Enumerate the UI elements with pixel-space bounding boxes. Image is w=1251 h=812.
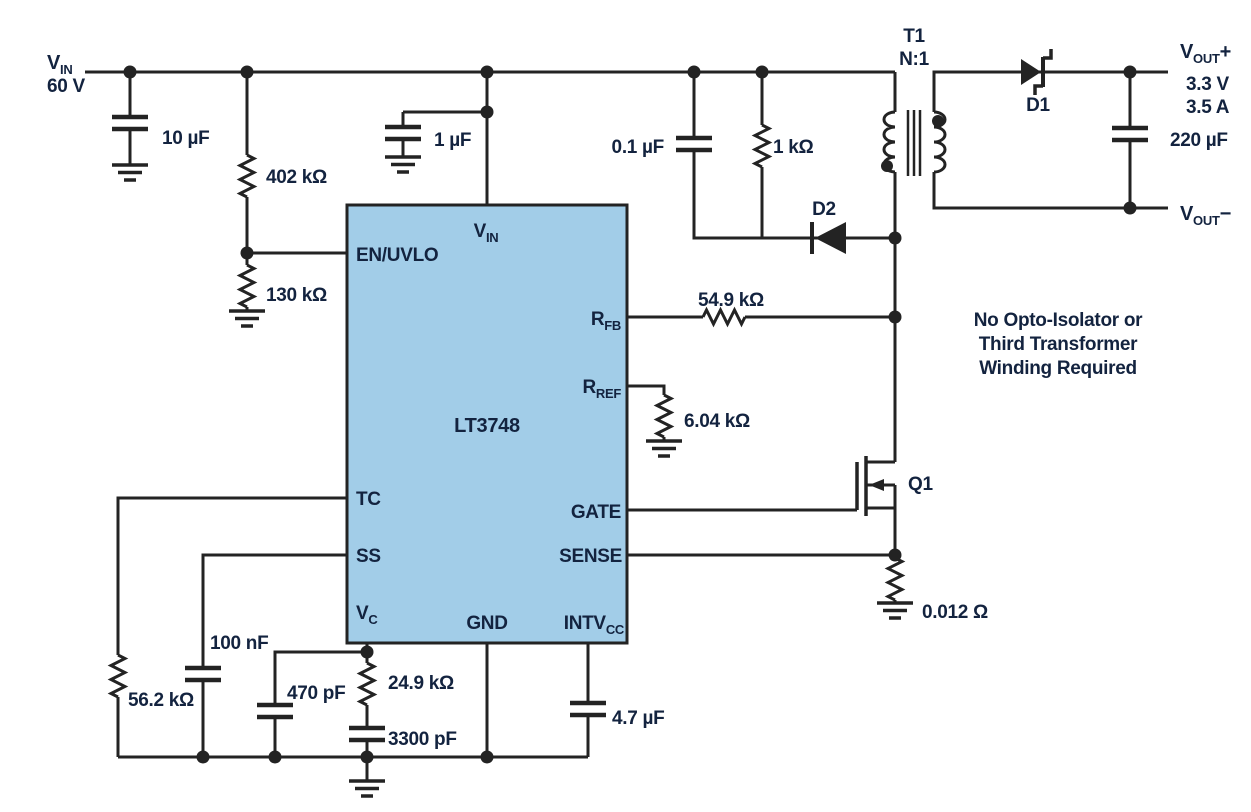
- label-resistor-0p012: 0.012 Ω: [922, 602, 988, 623]
- label-cap-4p7uf: 4.7 µF: [612, 708, 664, 729]
- cap-10uf-symbol: [112, 117, 148, 129]
- wire-vc-net: [275, 643, 367, 781]
- ground-uvlo: [229, 311, 265, 326]
- schematic-page: LT3748 EN/UVLO VIN RFB RREF TC SS VC GAT…: [0, 0, 1251, 812]
- junction-dot: [889, 549, 902, 562]
- resistor-1k-symbol: [755, 125, 769, 167]
- label-cap-470pf: 470 pF: [287, 683, 345, 704]
- label-vout-voltage: 3.3 V: [1186, 74, 1229, 95]
- cap-470pf-symbol: [257, 705, 293, 717]
- ground-rref: [646, 441, 682, 456]
- resistor-6p04k-symbol: [657, 395, 671, 437]
- junction-dot: [688, 66, 701, 79]
- note-line-2: Third Transformer: [979, 334, 1138, 355]
- ic-pin-tc: TC: [356, 489, 381, 510]
- ground-sense: [877, 603, 913, 618]
- resistor-0p012-symbol: [888, 558, 902, 600]
- label-cap-0p1uf: 0.1 µF: [612, 137, 664, 158]
- annotation-note: No Opto-Isolator or Third Transformer Wi…: [974, 310, 1143, 379]
- ic-pin-sense: SENSE: [559, 546, 622, 567]
- junction-dot: [361, 751, 374, 764]
- lt3748-flyback-schematic: LT3748 EN/UVLO VIN RFB RREF TC SS VC GAT…: [0, 0, 1251, 812]
- label-transformer-t1: T1: [903, 26, 925, 47]
- transformer-primary-phase-dot: [881, 160, 893, 172]
- label-resistor-402k: 402 kΩ: [266, 167, 327, 188]
- label-vin-voltage: 60 V: [47, 76, 86, 97]
- junction-dot: [124, 66, 137, 79]
- resistor-130k-symbol: [240, 265, 254, 307]
- diode-d2-triangle: [815, 222, 846, 254]
- label-resistor-54p9k: 54.9 kΩ: [698, 290, 764, 311]
- ground-input-cap: [112, 165, 148, 180]
- ic-pin-en-uvlo: EN/UVLO: [356, 245, 438, 266]
- junction-dot: [241, 247, 254, 260]
- cap-3300pf-symbol: [349, 728, 385, 740]
- transformer-t1: [881, 110, 945, 176]
- resistor-402k-symbol: [240, 155, 254, 197]
- ground-bottom: [349, 781, 385, 796]
- junction-dot: [481, 66, 494, 79]
- label-mosfet-q1: Q1: [908, 474, 933, 495]
- ic-pin-gnd: GND: [466, 613, 507, 634]
- diode-d1-triangle: [1021, 59, 1041, 85]
- labels: VIN 60 V 10 µF 402 kΩ 130 kΩ 1 µF 0.1 µF…: [47, 26, 1231, 750]
- label-resistor-24p9k: 24.9 kΩ: [388, 673, 454, 694]
- label-vout-current: 3.5 A: [1186, 97, 1230, 118]
- ic-pin-ss: SS: [356, 546, 381, 567]
- label-vin: VIN: [47, 52, 72, 77]
- junction-dot: [481, 751, 494, 764]
- resistor-54p9k-symbol: [703, 310, 745, 324]
- junction-dot: [481, 106, 494, 119]
- cap-0p1uf-symbol: [676, 138, 712, 150]
- label-cap-220uf: 220 µF: [1170, 130, 1228, 151]
- note-line-1: No Opto-Isolator or: [974, 310, 1143, 331]
- label-resistor-1k: 1 kΩ: [773, 137, 814, 158]
- mosfet-body-arrow: [869, 479, 884, 491]
- label-vout-minus: VOUT−: [1180, 203, 1231, 228]
- cap-1uf-symbol: [385, 127, 421, 139]
- wire-uvlo-branch: [247, 72, 347, 311]
- label-cap-100nf: 100 nF: [210, 633, 268, 654]
- junction-dot: [889, 232, 902, 245]
- note-line-3: Winding Required: [979, 358, 1137, 379]
- label-vout-plus: VOUT+: [1180, 41, 1231, 66]
- ic-pin-gate: GATE: [571, 502, 621, 523]
- ic-part-number: LT3748: [454, 415, 520, 437]
- label-cap-10uf: 10 µF: [162, 128, 209, 149]
- junction-dot: [269, 751, 282, 764]
- label-cap-1uf: 1 µF: [434, 130, 471, 151]
- junction-dot: [1124, 66, 1137, 79]
- diode-d2: [812, 222, 846, 254]
- transformer-secondary-phase-dot: [932, 115, 944, 127]
- junction-dot: [361, 646, 374, 659]
- ground-vin-cap: [385, 157, 421, 172]
- junction-dot: [756, 66, 769, 79]
- junction-dot: [1124, 202, 1137, 215]
- ic-lt3748: LT3748 EN/UVLO VIN RFB RREF TC SS VC GAT…: [347, 205, 627, 643]
- wire-tc-net: [118, 498, 347, 757]
- transformer-core: [908, 110, 920, 176]
- label-resistor-130k: 130 kΩ: [266, 285, 327, 306]
- cap-220uf-symbol: [1112, 128, 1148, 140]
- wire-mosfet-stubs: [866, 462, 895, 555]
- label-cap-3300pf: 3300 pF: [388, 729, 457, 750]
- junction-dot: [889, 311, 902, 324]
- label-resistor-6p04k: 6.04 kΩ: [684, 411, 750, 432]
- resistor-24p9k-symbol: [360, 663, 374, 705]
- label-diode-d2: D2: [812, 199, 836, 220]
- cap-100nf-symbol: [185, 668, 221, 680]
- label-transformer-ratio: N:1: [899, 49, 929, 70]
- resistor-56p2k-symbol: [111, 655, 125, 697]
- junction-dot: [197, 751, 210, 764]
- junction-dot: [241, 66, 254, 79]
- wire-sense-net: [627, 555, 895, 603]
- label-diode-d1: D1: [1026, 95, 1050, 116]
- label-resistor-56p2k: 56.2 kΩ: [128, 690, 194, 711]
- cap-4p7uf-symbol: [570, 703, 606, 715]
